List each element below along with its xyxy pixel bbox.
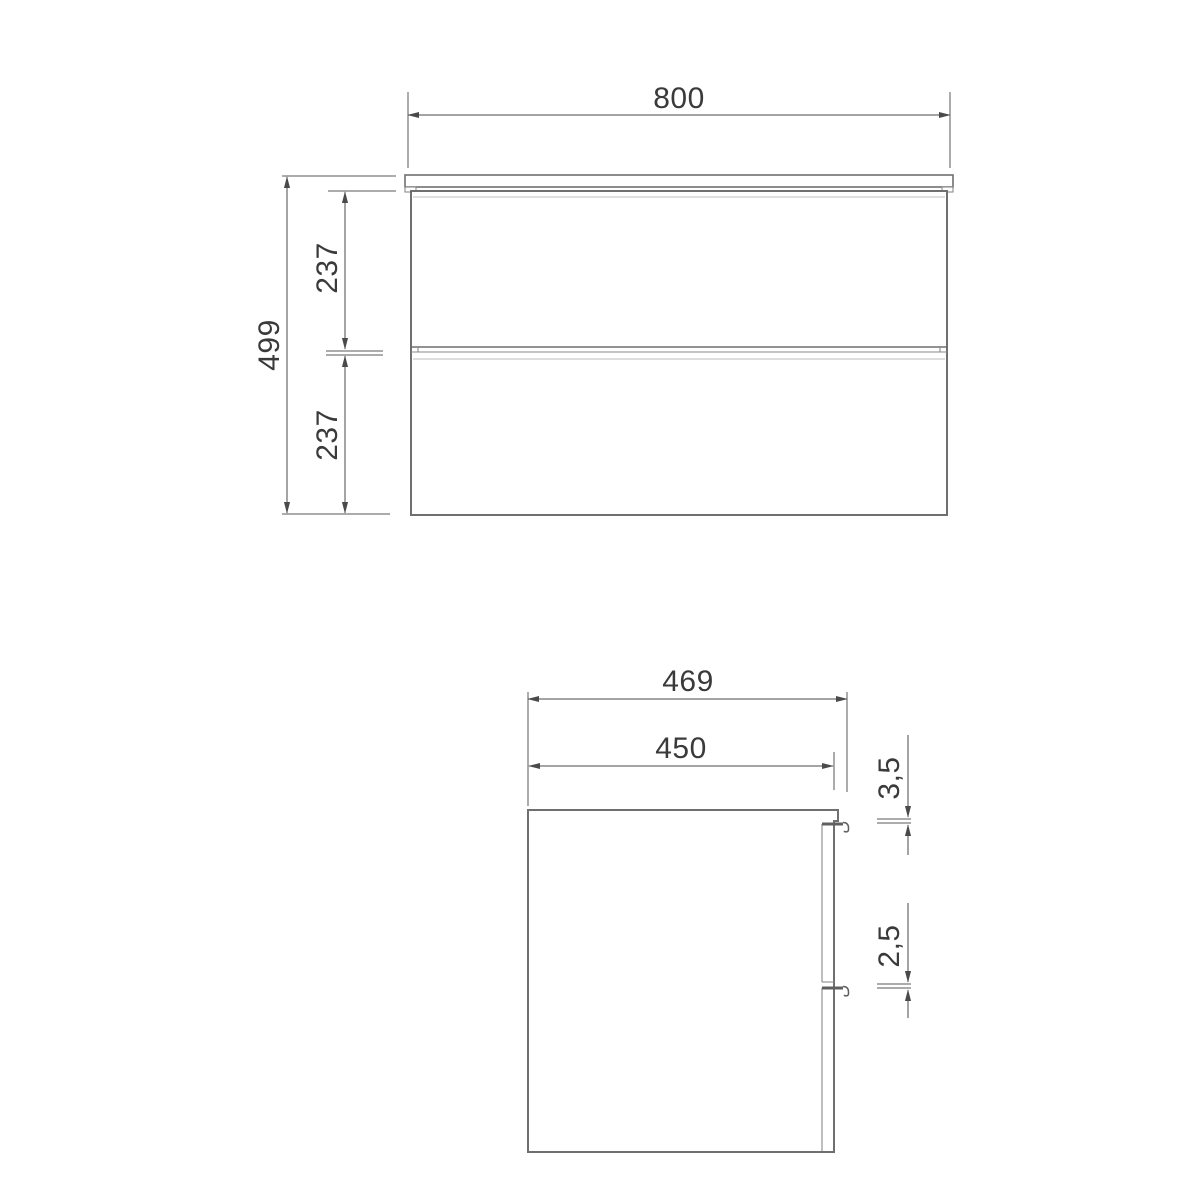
dimension-height: 499 xyxy=(253,176,396,514)
dimension-width: 800 xyxy=(408,82,950,168)
dimension-bottom-drawer: 237 xyxy=(311,355,383,513)
dimension-label-drawer-gap: 2,5 xyxy=(873,924,906,967)
dimension-label-depth-carcass: 450 xyxy=(655,732,707,765)
dimension-label-depth-overall: 469 xyxy=(662,665,714,698)
top-drawer-handle-hook xyxy=(843,823,849,832)
dimension-label-width: 800 xyxy=(653,82,705,115)
cabinet-body xyxy=(411,191,947,515)
front-view: 800 499 237 237 xyxy=(253,82,953,515)
bottom-drawer-handle-hook xyxy=(843,987,849,996)
dimension-drawer-gap: 2,5 xyxy=(873,903,911,1018)
side-cabinet xyxy=(528,810,849,1152)
front-cabinet xyxy=(405,175,953,515)
technical-drawing: 800 499 237 237 xyxy=(0,0,1200,1200)
side-view: 469 450 3,5 2,5 xyxy=(528,665,911,1152)
drawing-canvas: 800 499 237 237 xyxy=(0,0,1200,1200)
dimension-top-drawer: 237 xyxy=(311,191,396,351)
carcass-outline xyxy=(528,810,838,1152)
dimension-top-gap: 3,5 xyxy=(873,735,911,855)
dimension-label-height: 499 xyxy=(253,319,286,371)
dimension-depth-carcass: 450 xyxy=(529,732,834,790)
dimension-label-top-drawer: 237 xyxy=(311,242,344,294)
countertop xyxy=(405,175,953,187)
dimension-label-bottom-drawer: 237 xyxy=(311,409,344,461)
dimension-label-top-gap: 3,5 xyxy=(873,756,906,799)
